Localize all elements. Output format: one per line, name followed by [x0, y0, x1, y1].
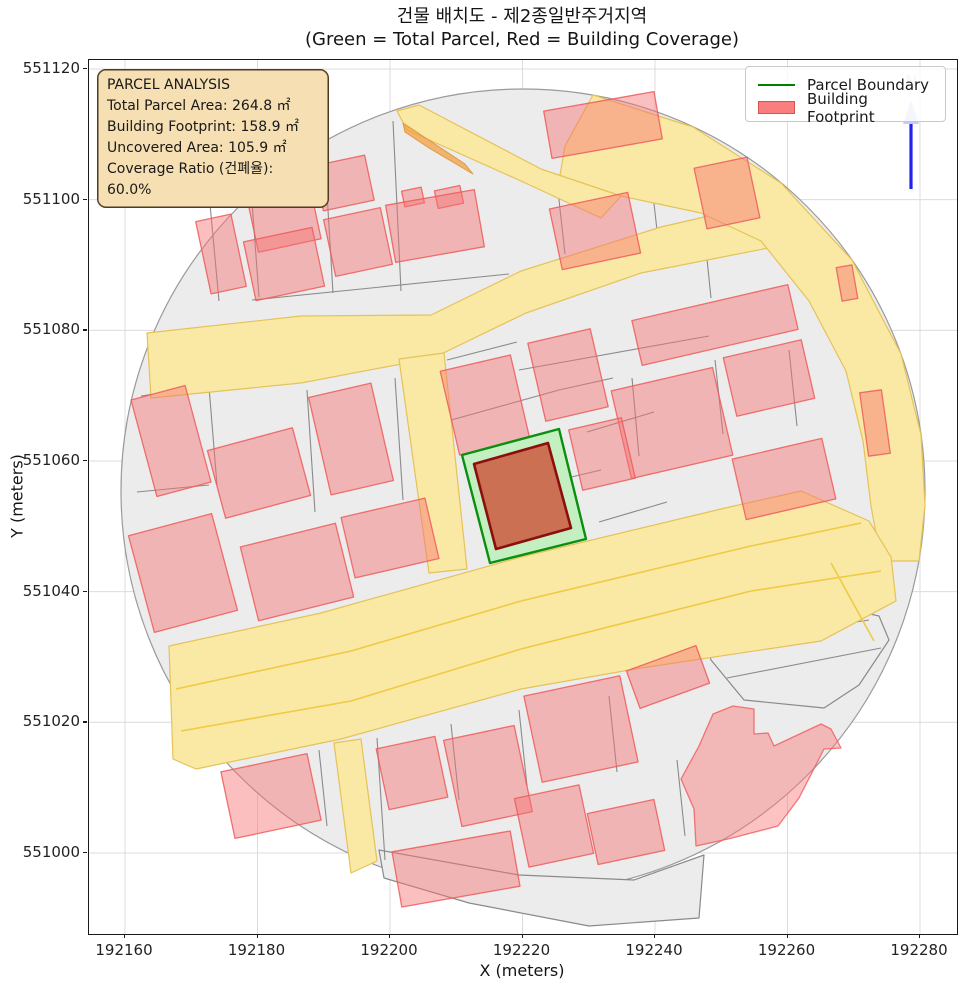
x-tick-mark — [919, 934, 920, 938]
parcel-analysis-footprint: Building Footprint: 158.9 ㎡ — [107, 117, 319, 138]
building-footprint-patch-swatch — [758, 101, 795, 114]
y-tick-label: 551060 — [18, 451, 80, 469]
y-tick-mark — [83, 329, 87, 330]
x-tick-label: 192260 — [758, 941, 815, 959]
x-tick-mark — [257, 934, 258, 938]
x-tick-label: 192180 — [228, 941, 285, 959]
y-tick-label: 551100 — [18, 190, 80, 208]
y-tick-mark — [83, 68, 87, 69]
legend-item-building-footprint: Building Footprint — [758, 96, 937, 119]
parcel-boundary-line-swatch — [758, 84, 795, 86]
chart-title: 건물 배치도 - 제2종일반주거지역 — [88, 5, 956, 28]
x-tick-label: 192280 — [890, 941, 947, 959]
y-tick-label: 551040 — [18, 582, 80, 600]
x-tick-mark — [787, 934, 788, 938]
x-tick-label: 192160 — [95, 941, 152, 959]
y-tick-label: 551080 — [18, 320, 80, 338]
x-tick-mark — [389, 934, 390, 938]
x-tick-mark — [124, 934, 125, 938]
x-tick-mark — [654, 934, 655, 938]
y-tick-label: 551020 — [18, 712, 80, 730]
legend-label-building-footprint: Building Footprint — [807, 90, 937, 126]
parcel-analysis-title: PARCEL ANALYSIS — [107, 75, 319, 96]
x-tick-label: 192220 — [493, 941, 550, 959]
legend: Parcel Boundary Building Footprint — [745, 66, 946, 122]
parcel-analysis-coverage: Coverage Ratio (건폐율): 60.0% — [107, 159, 319, 201]
x-tick-label: 192200 — [360, 941, 417, 959]
y-tick-label: 551120 — [18, 59, 80, 77]
x-tick-mark — [522, 934, 523, 938]
y-tick-mark — [83, 721, 87, 722]
chart-subtitle: (Green = Total Parcel, Red = Building Co… — [88, 28, 956, 51]
x-tick-label: 192240 — [625, 941, 682, 959]
y-tick-label: 551000 — [18, 843, 80, 861]
parcel-analysis-box: PARCEL ANALYSIS Total Parcel Area: 264.8… — [97, 69, 329, 208]
y-tick-mark — [83, 199, 87, 200]
y-tick-mark — [83, 852, 87, 853]
parcel-analysis-total-area: Total Parcel Area: 264.8 ㎡ — [107, 96, 319, 117]
x-axis-label: X (meters) — [88, 961, 956, 980]
y-tick-mark — [83, 460, 87, 461]
y-tick-mark — [83, 591, 87, 592]
figure: 건물 배치도 - 제2종일반주거지역 (Green = Total Parcel… — [0, 0, 964, 990]
parcel-analysis-uncovered: Uncovered Area: 105.9 ㎡ — [107, 138, 319, 159]
